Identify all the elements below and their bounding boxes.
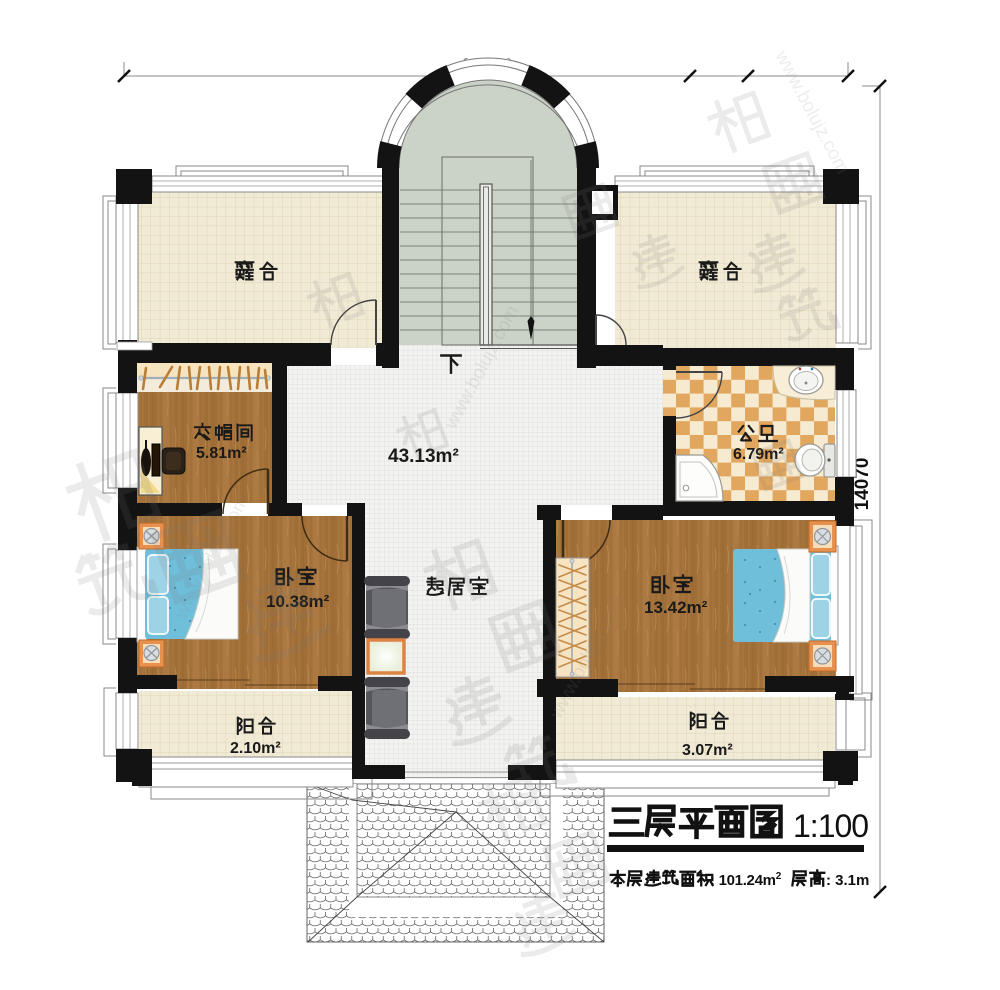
svg-text:13.42m²: 13.42m² [644, 598, 708, 617]
svg-text:5.81m²: 5.81m² [196, 445, 247, 462]
svg-text:: 101.24m2: : 101.24m2 [710, 871, 782, 889]
svg-text:3.07m²: 3.07m² [682, 742, 733, 759]
svg-text:1:100: 1:100 [793, 808, 868, 844]
svg-text:43.13m²: 43.13m² [388, 446, 459, 467]
svg-text:: 3.1m: : 3.1m [826, 872, 869, 889]
svg-text:2.10m²: 2.10m² [230, 740, 281, 757]
